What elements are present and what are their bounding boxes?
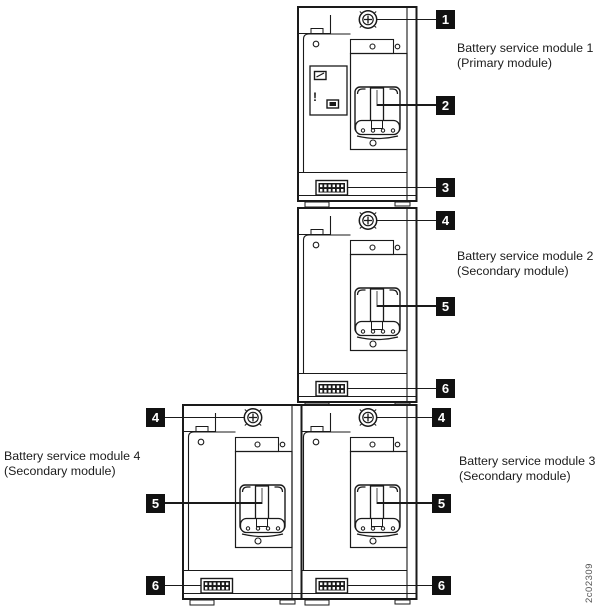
module3-callout-5-badge: 5	[432, 494, 451, 513]
module3-callout-5-number: 5	[438, 496, 445, 511]
power-connector-icon	[316, 579, 348, 594]
module-chassis	[298, 208, 417, 408]
module3-callout-4-badge: 4	[432, 408, 451, 427]
callout-2-number: 2	[442, 98, 449, 113]
module3-callout-4-leader-line	[376, 417, 432, 419]
callout-6-number: 6	[442, 381, 449, 396]
battery-module-2-illustration	[297, 207, 418, 410]
callout-5-leader-line	[377, 305, 436, 307]
module4-callout-6-number: 6	[152, 578, 159, 593]
module-4-label-line1: Battery service module 4	[4, 449, 140, 464]
callout-4-leader-line	[376, 220, 436, 222]
callout-1-badge: 1	[436, 10, 455, 29]
module-2-label: Battery service module 2 (Secondary modu…	[457, 249, 593, 279]
module-4-label-line2: (Secondary module)	[4, 464, 140, 479]
figure-id-watermark: 2c02309	[584, 545, 595, 603]
module-3-label: Battery service module 3 (Secondary modu…	[459, 454, 595, 484]
module-1-label-line1: Battery service module 1	[457, 41, 593, 56]
module-3-label-line1: Battery service module 3	[459, 454, 595, 469]
module-4-label: Battery service module 4 (Secondary modu…	[4, 449, 140, 479]
callout-3-badge: 3	[436, 178, 455, 197]
battery-module-3-illustration	[297, 404, 418, 607]
module4-callout-4-leader-line	[165, 417, 244, 419]
power-connector-icon	[201, 579, 233, 594]
module-chassis	[183, 405, 302, 605]
battery-module-4-illustration	[182, 404, 303, 607]
figure-canvas: ! 1 2 3 Battery service module 1 (Primar…	[0, 0, 605, 611]
power-connector-icon	[316, 181, 348, 196]
module4-callout-6-badge: 6	[146, 576, 165, 595]
module-2-label-line1: Battery service module 2	[457, 249, 593, 264]
module-3-label-line2: (Secondary module)	[459, 469, 595, 484]
battery-module-1-illustration	[297, 6, 418, 209]
callout-2-badge: 2	[436, 96, 455, 115]
callout-6-badge: 6	[436, 379, 455, 398]
module3-callout-6-badge: 6	[432, 576, 451, 595]
module4-callout-5-leader-line	[165, 502, 262, 504]
module-1-label: Battery service module 1 (Primary module…	[457, 41, 593, 71]
module3-callout-6-leader-line	[347, 585, 432, 587]
callout-2-leader-line	[377, 104, 436, 106]
module3-callout-4-number: 4	[438, 410, 445, 425]
power-connector-icon	[316, 382, 348, 397]
callout-5-badge: 5	[436, 297, 455, 316]
module4-callout-6-leader-line	[165, 585, 201, 587]
callout-3-number: 3	[442, 180, 449, 195]
module4-callout-4-badge: 4	[146, 408, 165, 427]
callout-1-leader-line	[376, 19, 436, 21]
callout-1-number: 1	[442, 12, 449, 27]
module-chassis	[298, 405, 417, 605]
module3-callout-6-number: 6	[438, 578, 445, 593]
callout-3-leader-line	[347, 187, 436, 189]
module4-callout-5-badge: 5	[146, 494, 165, 513]
battery-warning-label-icon	[310, 66, 347, 115]
module4-callout-4-number: 4	[152, 410, 159, 425]
callout-4-badge: 4	[436, 211, 455, 230]
callout-4-number: 4	[442, 213, 449, 228]
callout-6-leader-line	[347, 388, 436, 390]
module4-callout-5-number: 5	[152, 496, 159, 511]
module-1-label-line2: (Primary module)	[457, 56, 593, 71]
module3-callout-5-leader-line	[377, 502, 432, 504]
callout-5-number: 5	[442, 299, 449, 314]
module-2-label-line2: (Secondary module)	[457, 264, 593, 279]
